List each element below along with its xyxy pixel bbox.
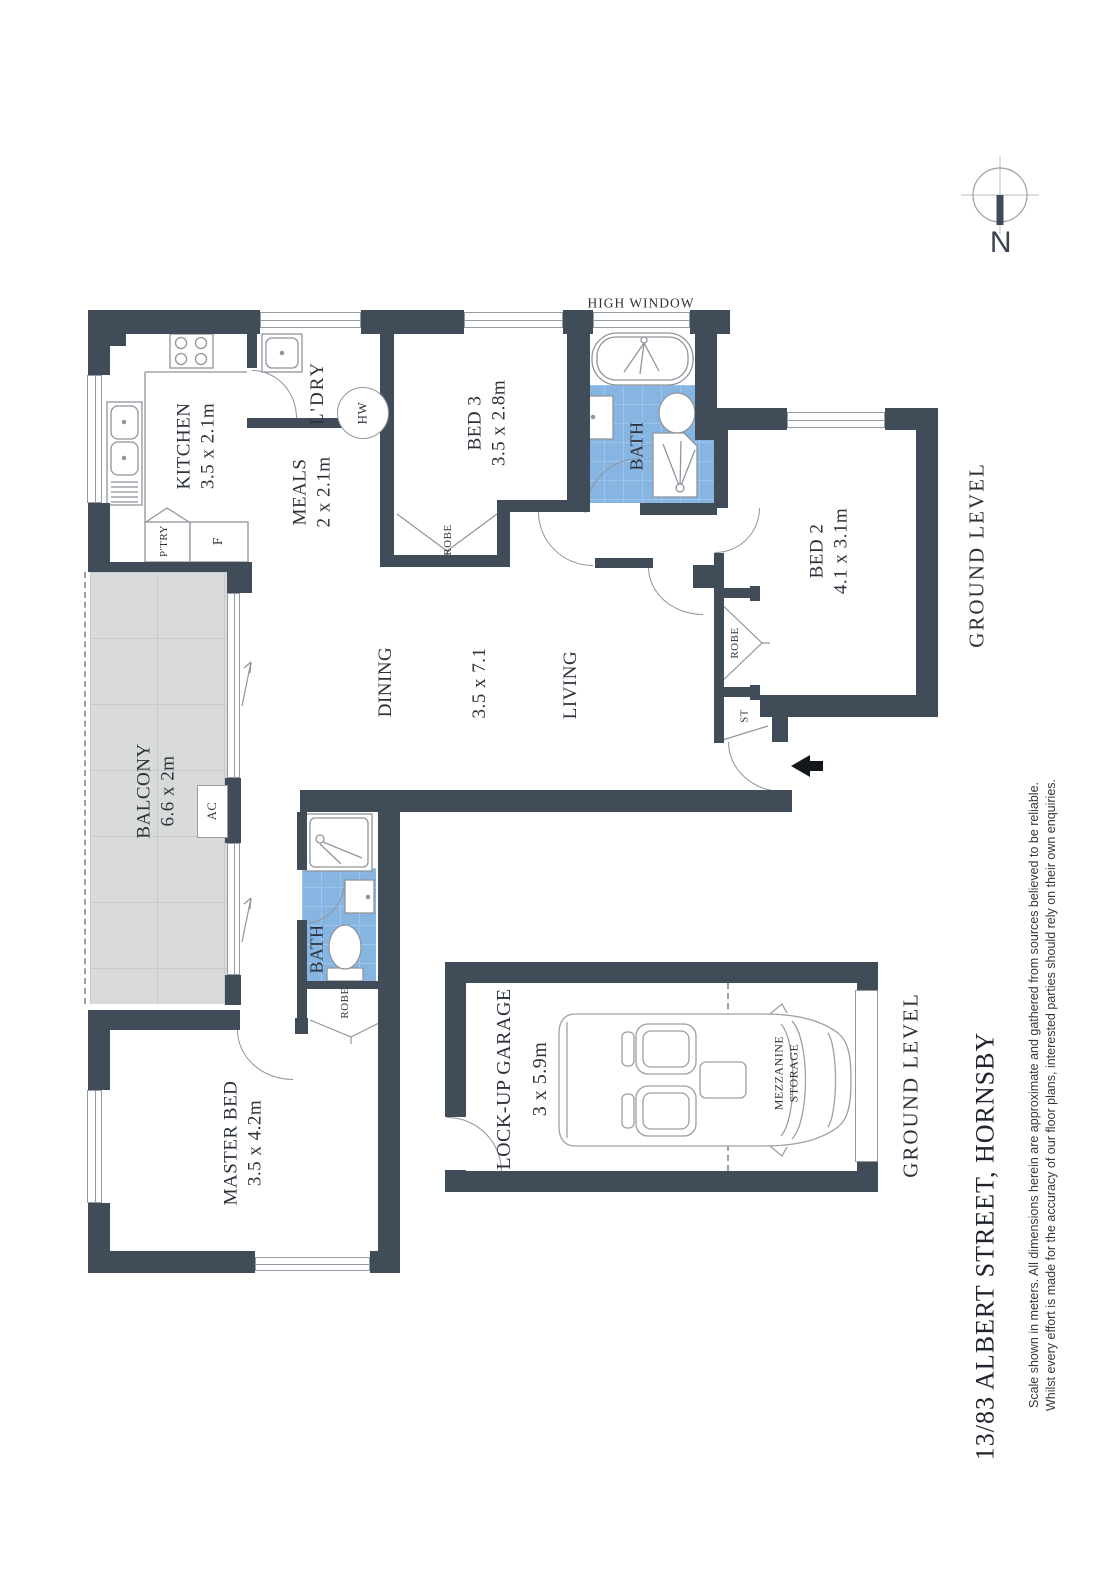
laundry-tub-icon <box>262 334 302 372</box>
door-arc-bed3 <box>538 512 593 566</box>
door-arc-bed2 <box>715 508 760 553</box>
wall <box>88 334 110 375</box>
high-window <box>593 312 690 328</box>
balcony-sliding-door <box>227 843 240 975</box>
wall <box>916 408 938 717</box>
wall <box>690 310 730 334</box>
room-label-garage: LOCK-UP GARAGE 3 x 5.9m <box>486 988 558 1169</box>
stove-icon <box>170 334 213 368</box>
room-label-balcony: BALCONY 6.6 x 2m <box>133 743 182 838</box>
window <box>464 312 563 328</box>
high-window-label: HIGH WINDOW <box>587 294 694 311</box>
storage-label: ST <box>738 709 751 722</box>
hot-water-label: HW <box>355 402 372 425</box>
mezzanine-dashed-line <box>727 983 729 1171</box>
shower-icon-ensuite <box>306 814 372 871</box>
compass-icon <box>961 156 1039 234</box>
ground-level-label-unit: GROUND LEVEL <box>964 462 991 648</box>
bed2-robe-label: ROBE <box>728 627 742 658</box>
car-icon <box>559 1004 851 1156</box>
wall <box>714 553 724 743</box>
disclaimer-line-1: Scale shown in meters. All dimensions he… <box>1026 782 1042 1408</box>
wall <box>380 334 394 567</box>
page-title: 13/83 ALBERT STREET, HORNSBY <box>968 1032 1001 1461</box>
wall <box>857 1160 878 1192</box>
wall <box>695 334 717 440</box>
wall <box>445 962 878 983</box>
wall <box>227 562 252 593</box>
wall <box>445 962 466 1117</box>
door-arc-master <box>237 1030 293 1080</box>
bed3-robe-label: ROBE <box>441 524 455 555</box>
floorplan-page: HIGH WINDOW KITCHEN 3.5 x 2.1m L'DRY HW … <box>0 0 1120 1584</box>
window <box>87 1090 102 1203</box>
wall <box>750 685 760 700</box>
fridge-label: F <box>210 537 228 545</box>
mezzanine-label: MEZZANINE STORAGE <box>772 1036 803 1110</box>
wall <box>717 408 787 430</box>
ground-level-label-garage: GROUND LEVEL <box>898 992 925 1178</box>
window <box>787 412 885 428</box>
wall <box>445 1171 878 1192</box>
pantry-bifold-icon <box>146 508 189 522</box>
wall <box>247 334 257 368</box>
balcony-sliding-door <box>227 593 240 778</box>
wall <box>361 310 464 334</box>
room-label-master-bed: MASTER BED 3.5 x 4.2m <box>220 1081 269 1206</box>
wall <box>595 558 653 568</box>
room-label-bed2: BED 2 4.1 x 3.1m <box>806 508 855 594</box>
sliding-door-arrow-1 <box>242 662 251 706</box>
wall <box>225 975 241 1005</box>
disclaimer-line-2: Whilst every effort is made for the accu… <box>1043 779 1059 1411</box>
entry-arrow-icon <box>791 755 823 777</box>
balcony-boundary-dashed <box>84 572 86 1004</box>
wall <box>497 500 510 560</box>
wall <box>714 430 728 508</box>
air-con-label: AC <box>204 802 220 820</box>
pantry-label: P'TRY <box>157 525 171 557</box>
wall <box>378 800 400 1273</box>
garage-roller-door <box>855 990 878 1162</box>
room-label-living: LIVING <box>559 651 583 719</box>
master-robe-bifold-icon <box>310 1020 385 1044</box>
wall <box>380 555 510 567</box>
compass-north-label: N <box>990 224 1012 262</box>
wall <box>567 334 590 504</box>
wall <box>295 1018 308 1034</box>
room-label-bed3: BED 3 3.5 x 2.8m <box>464 380 513 466</box>
wall <box>300 790 792 812</box>
room-label-meals: MEALS 2 x 2.1m <box>289 456 338 527</box>
window <box>260 312 361 328</box>
wall <box>297 812 307 870</box>
room-label-bath-main: BATH <box>625 421 648 470</box>
room-label-laundry: L'DRY <box>306 361 330 425</box>
room-label-dining: DINING <box>374 647 398 718</box>
master-robe-label: ROBE <box>338 987 352 1018</box>
wall <box>750 586 760 601</box>
room-label-kitchen: KITCHEN 3.5 x 2.1m <box>173 403 222 490</box>
living-dining-dims-label: 3.5 x 7.1 <box>468 648 492 719</box>
bed2-robe-bifold-icon <box>716 599 770 687</box>
door-arc-entry <box>728 742 783 792</box>
bathtub-icon <box>592 333 693 385</box>
window <box>87 375 102 503</box>
door-arc-kitchen <box>252 370 297 418</box>
wall <box>88 1010 240 1030</box>
wall <box>563 310 593 334</box>
kitchen-sink-icon <box>107 402 142 505</box>
sliding-door-arrow-2 <box>242 898 251 942</box>
room-label-bath-ensuite: BATH <box>305 924 328 973</box>
window <box>255 1257 370 1271</box>
wall <box>772 698 788 742</box>
wall <box>640 503 717 515</box>
wall <box>88 1251 255 1273</box>
